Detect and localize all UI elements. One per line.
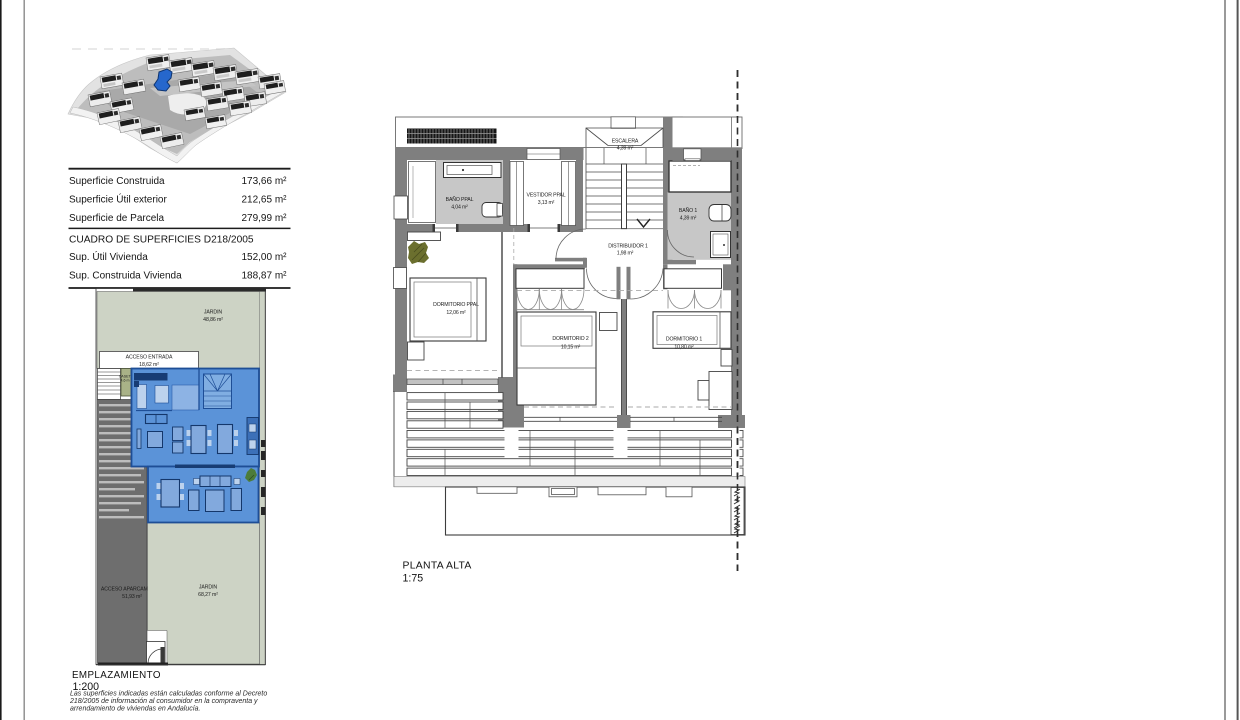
svg-text:DORMITORIO PPAL: DORMITORIO PPAL [433, 302, 479, 308]
svg-text:JARDIN: JARDIN [204, 310, 222, 316]
svg-text:12,06 m²: 12,06 m² [446, 310, 466, 316]
svg-text:188,87 m²: 188,87 m² [241, 271, 287, 282]
svg-text:51,93 m²: 51,93 m² [122, 594, 142, 600]
svg-text:152,00 m²: 152,00 m² [241, 252, 287, 263]
svg-text:arrendamiento de viviendas en: arrendamiento de viviendas en Andalucía. [70, 706, 201, 713]
svg-text:4,04 m²: 4,04 m² [451, 205, 468, 211]
svg-text:Superficie Construida: Superficie Construida [69, 176, 165, 187]
svg-text:Sup. Útil Vivienda: Sup. Útil Vivienda [69, 250, 148, 263]
svg-text:10,80 m²: 10,80 m² [674, 345, 694, 351]
svg-text:173,66 m²: 173,66 m² [241, 176, 287, 187]
svg-text:1:75: 1:75 [403, 573, 424, 585]
svg-text:10,15 m²: 10,15 m² [561, 345, 581, 351]
svg-text:JARDIN: JARDIN [199, 585, 217, 591]
svg-text:CUADRO DE SUPERFICIES D218/200: CUADRO DE SUPERFICIES D218/2005 [69, 235, 254, 246]
svg-text:PLANTA ALTA: PLANTA ALTA [403, 561, 472, 572]
svg-text:4,39 m²: 4,39 m² [617, 146, 634, 152]
svg-text:3,13 m²: 3,13 m² [538, 200, 555, 206]
svg-text:ACCESO ENTRADA: ACCESO ENTRADA [126, 355, 173, 361]
svg-text:ESCALERA: ESCALERA [612, 139, 639, 145]
svg-text:BAÑO PPAL: BAÑO PPAL [446, 196, 474, 203]
svg-text:18,62 m²: 18,62 m² [139, 362, 159, 368]
svg-text:Superficie Útil exterior: Superficie Útil exterior [69, 193, 167, 206]
svg-text:1,98 m²: 1,98 m² [617, 251, 634, 257]
svg-text:Sup. Construida Vivienda: Sup. Construida Vivienda [69, 271, 182, 282]
svg-text:4,6 m: 4,6 m [121, 379, 130, 383]
svg-text:68,27 m²: 68,27 m² [198, 592, 218, 598]
svg-text:BAÑO 1: BAÑO 1 [679, 207, 697, 214]
svg-text:EMPLAZAMIENTO: EMPLAZAMIENTO [72, 670, 161, 681]
svg-text:VESTIDOR PPAL: VESTIDOR PPAL [527, 193, 566, 199]
svg-text:48,86 m²: 48,86 m² [203, 317, 223, 323]
svg-text:DORMITORIO 1: DORMITORIO 1 [666, 337, 702, 343]
svg-text:Superficie de Parcela: Superficie de Parcela [69, 213, 164, 224]
svg-text:DISTRIBUIDOR 1: DISTRIBUIDOR 1 [608, 244, 648, 250]
svg-text:218/2005 de información al con: 218/2005 de información al consumidor en… [69, 698, 258, 705]
svg-text:4,39 m²: 4,39 m² [680, 216, 697, 222]
svg-text:Las superficies indicadas está: Las superficies indicadas están calculad… [70, 691, 267, 698]
svg-text:212,65 m²: 212,65 m² [241, 195, 287, 206]
svg-text:DORMITORIO 2: DORMITORIO 2 [552, 336, 588, 342]
svg-text:279,99 m²: 279,99 m² [241, 213, 287, 224]
